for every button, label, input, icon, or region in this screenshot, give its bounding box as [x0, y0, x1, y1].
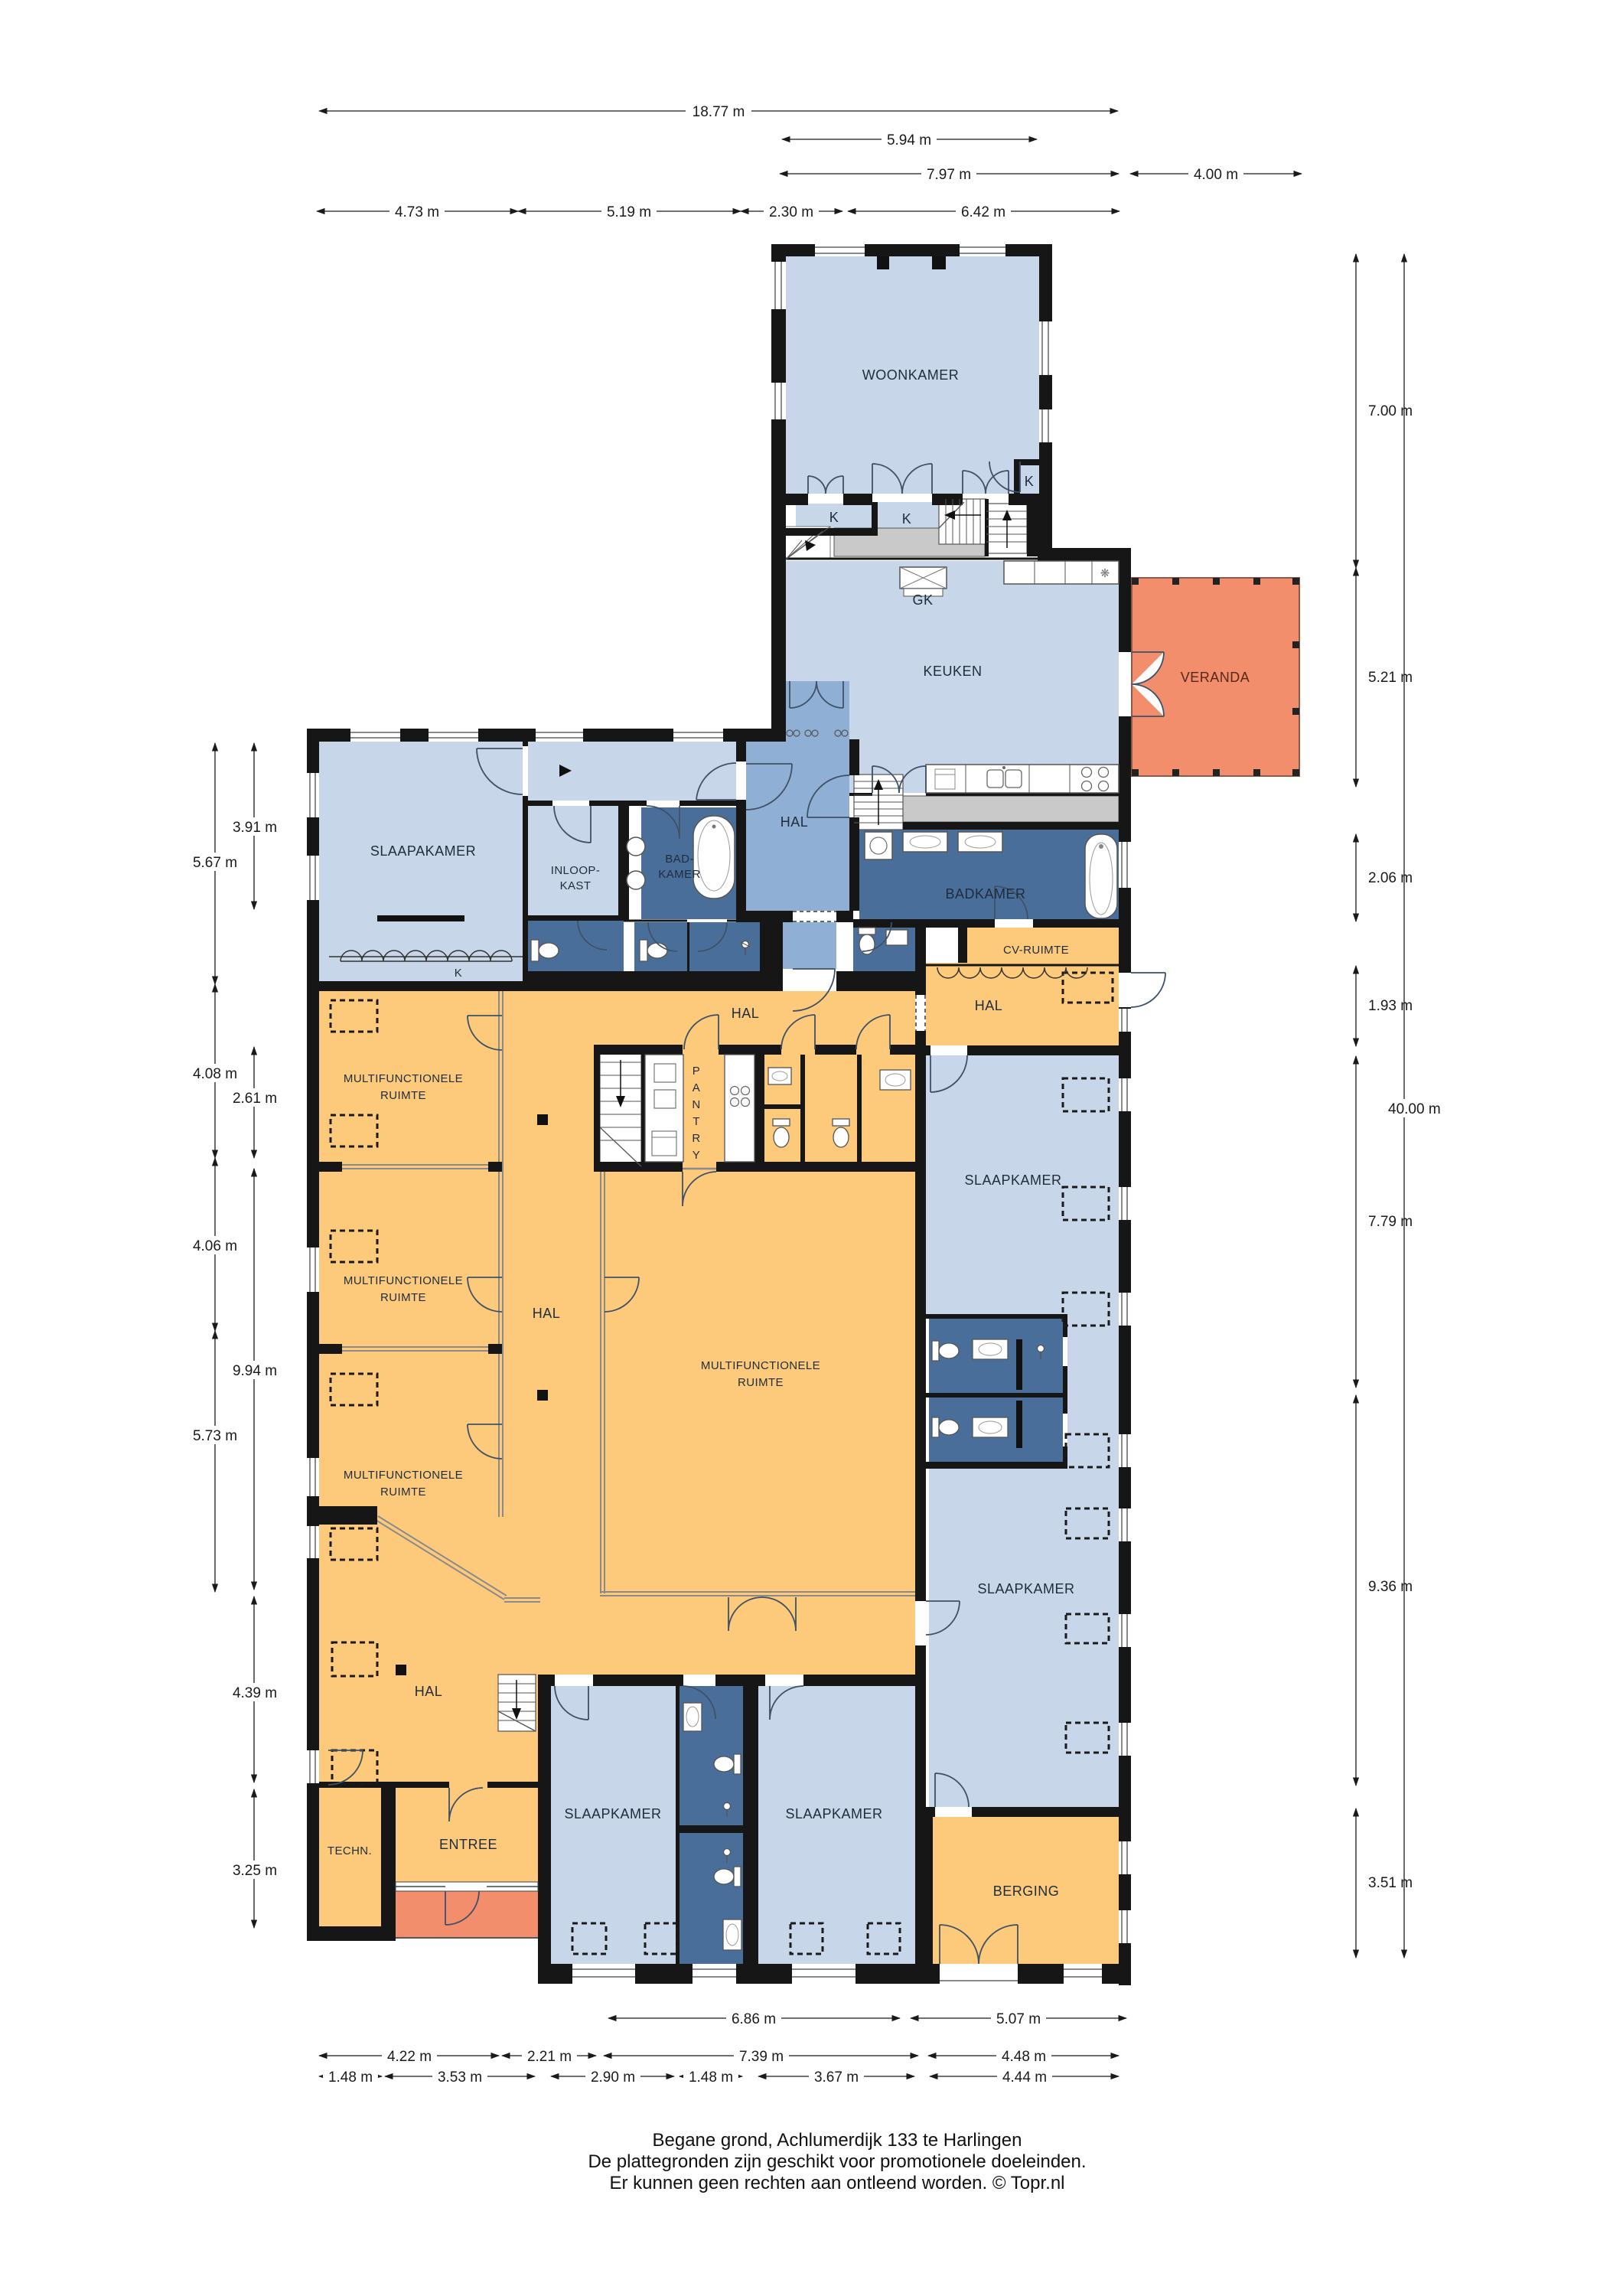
svg-text:RUIMTE: RUIMTE [380, 1486, 426, 1499]
svg-text:3.67 m: 3.67 m [814, 2069, 859, 2086]
svg-text:SLAAPKAMER: SLAAPKAMER [785, 1806, 882, 1821]
svg-text:2.61 m: 2.61 m [233, 1091, 277, 1107]
svg-text:5.73 m: 5.73 m [193, 1428, 237, 1444]
svg-text:KAST: KAST [560, 879, 592, 892]
svg-text:VERANDA: VERANDA [1181, 670, 1250, 685]
svg-text:K: K [902, 511, 912, 527]
svg-text:WOONKAMER: WOONKAMER [862, 367, 960, 383]
svg-text:ENTREE: ENTREE [439, 1837, 497, 1852]
svg-text:BERGING: BERGING [993, 1883, 1060, 1899]
svg-text:SLAAPAKAMER: SLAAPAKAMER [370, 843, 476, 859]
svg-text:1.48 m: 1.48 m [328, 2069, 373, 2086]
svg-text:4.48 m: 4.48 m [1002, 2049, 1046, 2065]
svg-text:4.44 m: 4.44 m [1002, 2069, 1047, 2086]
svg-text:7.39 m: 7.39 m [739, 2049, 784, 2065]
svg-text:7.00 m: 7.00 m [1368, 403, 1413, 419]
svg-text:4.39 m: 4.39 m [233, 1685, 277, 1701]
svg-text:5.07 m: 5.07 m [996, 2011, 1041, 2027]
svg-text:CV-RUIMTE: CV-RUIMTE [1003, 944, 1069, 957]
svg-text:HAL: HAL [781, 814, 809, 830]
svg-text:KEUKEN: KEUKEN [923, 664, 982, 679]
svg-text:2.06 m: 2.06 m [1368, 870, 1413, 886]
svg-text:3.25 m: 3.25 m [233, 1863, 277, 1879]
svg-text:K: K [455, 967, 462, 980]
svg-text:5.94 m: 5.94 m [887, 132, 931, 148]
svg-text:HAL: HAL [533, 1306, 561, 1321]
svg-text:4.08 m: 4.08 m [193, 1066, 237, 1082]
svg-text:2.90 m: 2.90 m [591, 2069, 635, 2086]
svg-text:MULTIFUNCTIONELE: MULTIFUNCTIONELE [701, 1359, 820, 1372]
svg-text:9.94 m: 9.94 m [233, 1363, 277, 1379]
svg-text:HAL: HAL [975, 998, 1003, 1013]
svg-text:6.86 m: 6.86 m [732, 2011, 776, 2027]
svg-text:MULTIFUNCTIONELE: MULTIFUNCTIONELE [344, 1469, 463, 1482]
svg-text:MULTIFUNCTIONELE: MULTIFUNCTIONELE [344, 1274, 463, 1287]
svg-text:5.21 m: 5.21 m [1368, 670, 1413, 686]
svg-text:RUIMTE: RUIMTE [380, 1089, 426, 1102]
svg-text:SLAAPKAMER: SLAAPKAMER [977, 1581, 1074, 1596]
svg-text:K: K [829, 510, 839, 525]
svg-text:INLOOP-: INLOOP- [551, 864, 600, 877]
svg-text:Begane grond, Achlumerdijk 133: Begane grond, Achlumerdijk 133 te Harlin… [653, 2130, 1022, 2151]
svg-text:BADKAMER: BADKAMER [945, 886, 1025, 902]
svg-text:2.21 m: 2.21 m [527, 2049, 572, 2065]
svg-text:RUIMTE: RUIMTE [738, 1376, 784, 1389]
svg-text:RUIMTE: RUIMTE [380, 1291, 426, 1304]
svg-text:SLAAPKAMER: SLAAPKAMER [564, 1806, 661, 1821]
svg-text:40.00 m: 40.00 m [1388, 1101, 1441, 1117]
svg-text:6.42 m: 6.42 m [961, 204, 1005, 220]
svg-text:Er kunnen geen rechten aan ont: Er kunnen geen rechten aan ontleend word… [610, 2173, 1065, 2193]
svg-text:3.91 m: 3.91 m [233, 820, 277, 836]
svg-text:N: N [692, 1098, 700, 1111]
svg-text:4.00 m: 4.00 m [1194, 167, 1238, 183]
svg-text:18.77 m: 18.77 m [693, 104, 745, 120]
svg-text:HAL: HAL [415, 1684, 443, 1699]
svg-text:TECHN.: TECHN. [328, 1844, 372, 1857]
svg-text:MULTIFUNCTIONELE: MULTIFUNCTIONELE [344, 1072, 463, 1085]
svg-text:3.51 m: 3.51 m [1368, 1875, 1413, 1891]
svg-text:KAMER: KAMER [658, 868, 700, 881]
svg-text:4.06 m: 4.06 m [193, 1238, 237, 1254]
svg-text:A: A [693, 1081, 700, 1094]
svg-text:BAD-: BAD- [665, 853, 693, 866]
svg-text:5.67 m: 5.67 m [193, 855, 237, 871]
svg-text:GK: GK [912, 592, 933, 608]
svg-text:P: P [693, 1065, 700, 1078]
svg-text:HAL: HAL [732, 1006, 760, 1021]
svg-text:7.97 m: 7.97 m [927, 167, 971, 183]
svg-text:T: T [693, 1115, 700, 1128]
svg-text:1.93 m: 1.93 m [1368, 998, 1413, 1014]
svg-text:Y: Y [693, 1149, 700, 1162]
svg-text:R: R [692, 1132, 700, 1145]
svg-text:De plattegronden zijn geschikt: De plattegronden zijn geschikt voor prom… [588, 2151, 1086, 2172]
svg-text:❋: ❋ [1100, 567, 1110, 580]
svg-text:3.53 m: 3.53 m [438, 2069, 482, 2086]
svg-text:2.30 m: 2.30 m [769, 204, 813, 220]
svg-text:1.48 m: 1.48 m [689, 2069, 733, 2086]
svg-text:7.79 m: 7.79 m [1368, 1214, 1413, 1230]
svg-text:4.22 m: 4.22 m [387, 2049, 432, 2065]
svg-text:4.73 m: 4.73 m [395, 204, 439, 220]
svg-text:K: K [1025, 474, 1035, 489]
svg-text:SLAAPKAMER: SLAAPKAMER [964, 1172, 1061, 1188]
svg-text:5.19 m: 5.19 m [607, 204, 651, 220]
svg-text:9.36 m: 9.36 m [1368, 1579, 1413, 1595]
